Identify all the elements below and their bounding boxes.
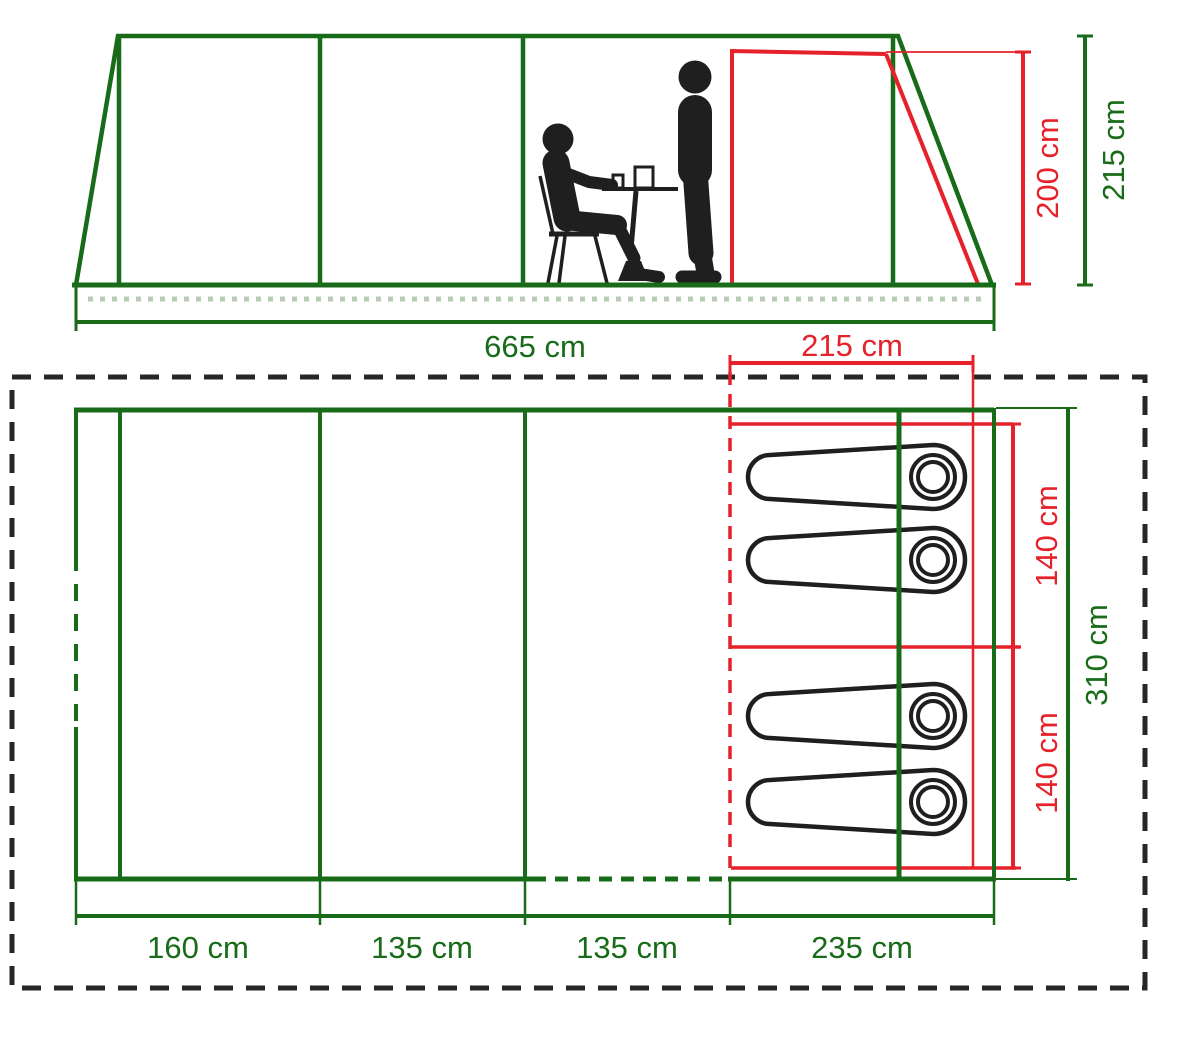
inner-tent-slope <box>886 54 978 284</box>
label-section-4: 235 cm <box>811 930 913 965</box>
dim-line-200 <box>1015 52 1031 284</box>
seated-person-icon <box>540 124 659 284</box>
floor-plan-view: 215 cm <box>74 328 1114 965</box>
standing-person-head <box>679 61 712 94</box>
label-bedroom-length: 215 cm <box>801 328 903 363</box>
carton-icon <box>635 167 653 188</box>
side-elevation-view: 665 cm 200 cm 215 cm <box>72 36 1131 364</box>
label-section-3: 135 cm <box>576 930 678 965</box>
label-peak-height: 215 cm <box>1096 99 1131 201</box>
footprint-dashed-outline <box>12 377 1145 988</box>
label-total-width: 310 cm <box>1079 604 1114 706</box>
label-bed-width-lower: 140 cm <box>1029 712 1064 814</box>
standing-person-icon <box>679 61 716 278</box>
tent-roof-outline <box>76 36 992 285</box>
dim-line-sections <box>76 881 994 925</box>
label-section-2: 135 cm <box>371 930 473 965</box>
cup-icon <box>613 175 623 188</box>
sleeping-bag-icon-4 <box>748 770 965 834</box>
diagram-canvas: 665 cm 200 cm 215 cm 215 cm <box>0 0 1200 1054</box>
inner-tent-outline <box>732 51 886 285</box>
tent-dimensions-diagram: 665 cm 200 cm 215 cm 215 cm <box>0 0 1200 1054</box>
label-inner-height: 200 cm <box>1030 117 1065 219</box>
label-bed-width-upper: 140 cm <box>1029 485 1064 587</box>
bedroom-area-outline <box>730 363 1020 868</box>
dim-line-140 <box>1005 424 1021 868</box>
label-total-length: 665 cm <box>484 329 586 364</box>
label-section-1: 160 cm <box>147 930 249 965</box>
sleeping-bag-icon-2 <box>748 528 965 592</box>
sleeping-bag-icon-3 <box>748 684 965 748</box>
dim-line-215-green <box>1077 36 1093 285</box>
sleeping-bag-icon-1 <box>748 445 965 509</box>
